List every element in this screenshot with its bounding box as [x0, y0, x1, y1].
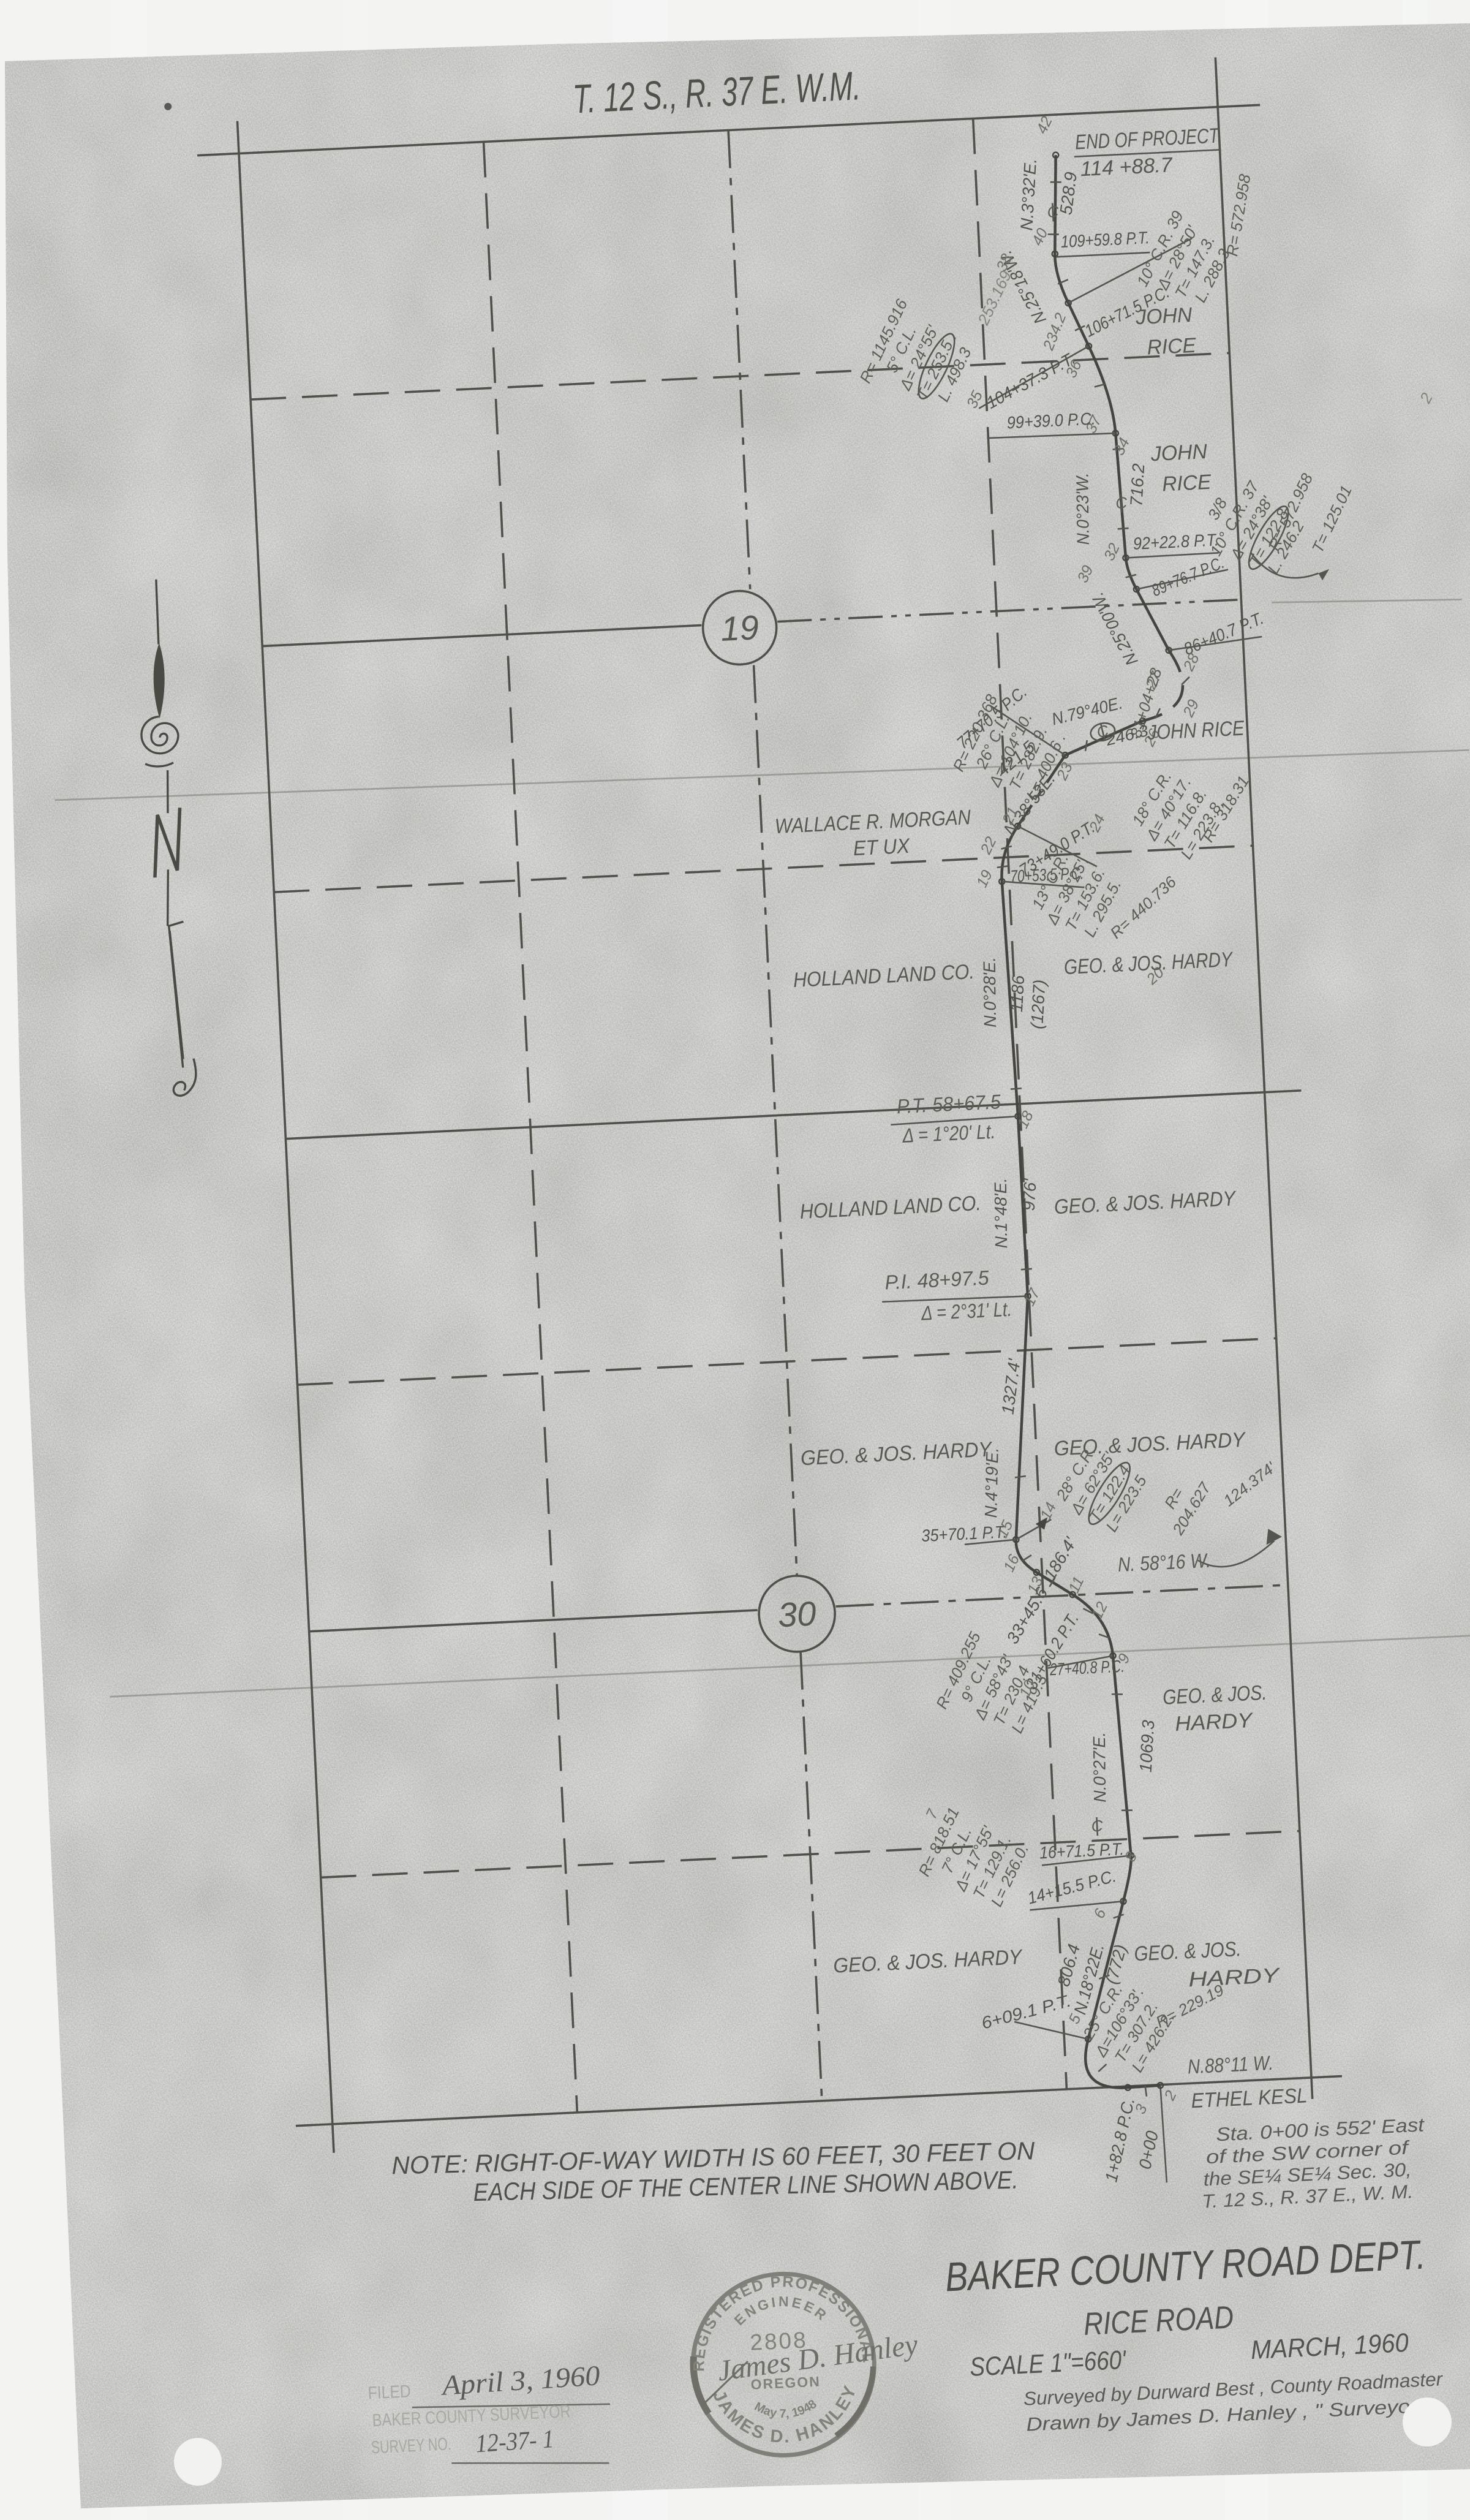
svg-text:N.0°27'E.: N.0°27'E.	[1090, 1732, 1109, 1803]
svg-text:114 +88.7: 114 +88.7	[1080, 153, 1174, 181]
svg-text:12-37- 1: 12-37- 1	[475, 2425, 555, 2458]
svg-text:N.4°19'E.: N.4°19'E.	[981, 1447, 1002, 1518]
svg-text:19: 19	[720, 608, 759, 648]
svg-text:716.2: 716.2	[1126, 463, 1148, 507]
svg-text:30: 30	[777, 1594, 817, 1634]
svg-text:FILED: FILED	[367, 2382, 411, 2403]
svg-text:N. 58°16 W.: N. 58°16 W.	[1117, 1549, 1212, 1576]
svg-text:JOHN: JOHN	[1150, 440, 1208, 466]
svg-text:N.88°11 W.: N.88°11 W.	[1187, 2051, 1274, 2078]
svg-text:C: C	[1091, 1817, 1103, 1836]
svg-text:Δ = 2°31' Lt.: Δ = 2°31' Lt.	[920, 1298, 1012, 1325]
svg-text:GEO. & JOS.: GEO. & JOS.	[1162, 1681, 1267, 1709]
svg-text:27+40.8 P.C.: 27+40.8 P.C.	[1049, 1657, 1125, 1679]
svg-text:N.0°23'W.: N.0°23'W.	[1072, 472, 1092, 545]
svg-text:Δ = 1°20' Lt.: Δ = 1°20' Lt.	[902, 1120, 996, 1147]
svg-text:N.1°48'E.: N.1°48'E.	[991, 1178, 1011, 1248]
svg-text:1186: 1186	[1007, 974, 1028, 1012]
svg-text:N.0°28'E.: N.0°28'E.	[980, 957, 1000, 1027]
svg-text:SURVEY NO.: SURVEY NO.	[371, 2434, 451, 2458]
svg-text:JOHN: JOHN	[1134, 303, 1193, 329]
svg-text:RICE ROAD: RICE ROAD	[1083, 2299, 1234, 2342]
svg-text:16+71.5 P.T.: 16+71.5 P.T.	[1039, 1839, 1124, 1863]
svg-text:JOHN RICE: JOHN RICE	[1147, 717, 1245, 745]
svg-text:RICE: RICE	[1147, 334, 1197, 360]
svg-text:RICE: RICE	[1161, 471, 1212, 496]
svg-text:(1267): (1267)	[1027, 979, 1049, 1030]
svg-text:1069.3: 1069.3	[1136, 1719, 1158, 1773]
svg-text:HARDY: HARDY	[1174, 1709, 1254, 1736]
svg-text:976': 976'	[1019, 1178, 1040, 1211]
svg-text:ET UX: ET UX	[853, 834, 911, 860]
svg-text:C: C	[1047, 202, 1059, 221]
svg-text:C: C	[1115, 493, 1128, 512]
svg-text:HARDY: HARDY	[1188, 1964, 1281, 1991]
